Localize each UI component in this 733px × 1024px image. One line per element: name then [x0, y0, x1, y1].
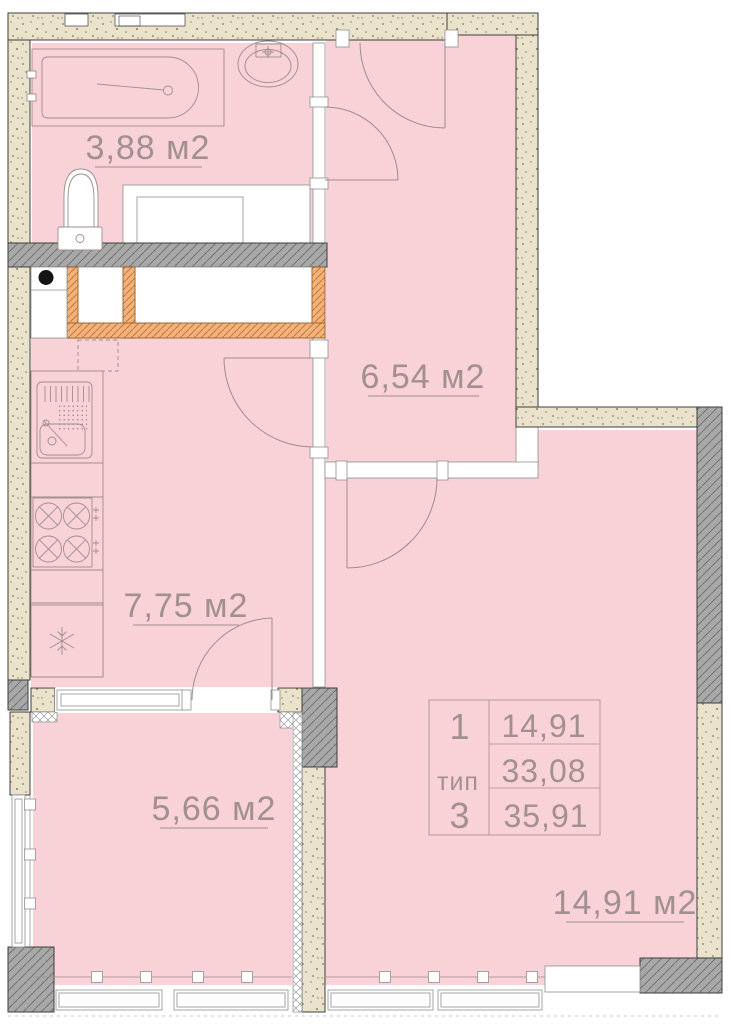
insulation-strip: [293, 713, 302, 1012]
wall-bearing-mid: [8, 243, 327, 267]
pier-kitchen-right: [278, 688, 302, 712]
door-jamb: [310, 97, 328, 107]
partition-horizontal: [325, 462, 538, 478]
room-floors: [31, 35, 697, 985]
wall-living-top: [516, 407, 697, 427]
balcony-area-label: 5,66 м2: [152, 790, 277, 828]
table-cell-left-1: 1: [449, 706, 470, 747]
door-jamb: [336, 461, 347, 480]
hallway-area-label: 6,54 м2: [361, 358, 486, 396]
door-jamb: [336, 30, 349, 47]
insulation-strip: [32, 712, 57, 722]
door-jamb: [437, 461, 448, 480]
hallway-floor: [326, 35, 516, 462]
table-cell-right-3: 35,91: [503, 798, 588, 834]
partition-stub: [516, 427, 538, 467]
table-cell-left-2: тип: [437, 768, 479, 796]
wall-top-right: [447, 13, 538, 35]
kitchen-balcony-window: [55, 688, 190, 712]
bathroom-niche-inner: [137, 197, 243, 243]
table-cell-right-2: 33,08: [501, 753, 586, 789]
pier-balcony-left: [10, 712, 30, 795]
riser-niche: [31, 267, 67, 338]
wall-hallway-right: [516, 35, 538, 407]
balcony-left-glazing: [12, 795, 36, 947]
door-jamb: [310, 447, 328, 458]
bathroom-area-label: 3,88 м2: [86, 129, 211, 167]
partition-vertical: [313, 43, 325, 687]
ventilation-shafts: [67, 267, 325, 338]
table-cell-right-1: 14,91: [501, 708, 586, 744]
wall-bearing-right: [697, 407, 722, 703]
balcony-bottom-glazing: [33, 972, 292, 1011]
floor-plan-canvas: 3,88 м2 6,54 м2 7,75 м2 5,66 м2 14,91 м2…: [0, 0, 733, 1024]
living-room-area-label: 14,91 м2: [553, 884, 698, 922]
apartment-info-table: 1 тип 3 14,91 33,08 35,91: [429, 700, 600, 836]
window-sill: [545, 966, 640, 992]
pier-kitchen-left: [31, 688, 55, 712]
sewer-riser-icon: [39, 270, 54, 285]
pier-balcony-right: [302, 767, 325, 1012]
table-cell-left-3: 3: [449, 795, 470, 836]
door-jamb: [445, 30, 458, 47]
vent-duct: [78, 267, 123, 323]
wall-notch: [65, 14, 88, 26]
shaft-wall: [67, 323, 325, 338]
wall-left: [8, 13, 30, 680]
block-living-corner: [640, 958, 722, 993]
door-jamb: [182, 690, 191, 710]
wall-right-lower: [697, 703, 722, 958]
block-balcony-corner: [8, 947, 54, 1012]
kitchen-area-label: 7,75 м2: [124, 587, 249, 625]
door-jamb: [310, 340, 328, 358]
floor-plan: 3,88 м2 6,54 м2 7,75 м2 5,66 м2 14,91 м2…: [0, 0, 733, 1024]
balcony-floor: [33, 713, 292, 985]
vent-duct: [135, 267, 312, 323]
pier-bearing-balcony: [302, 688, 337, 767]
pier-bearing-left: [8, 680, 28, 710]
